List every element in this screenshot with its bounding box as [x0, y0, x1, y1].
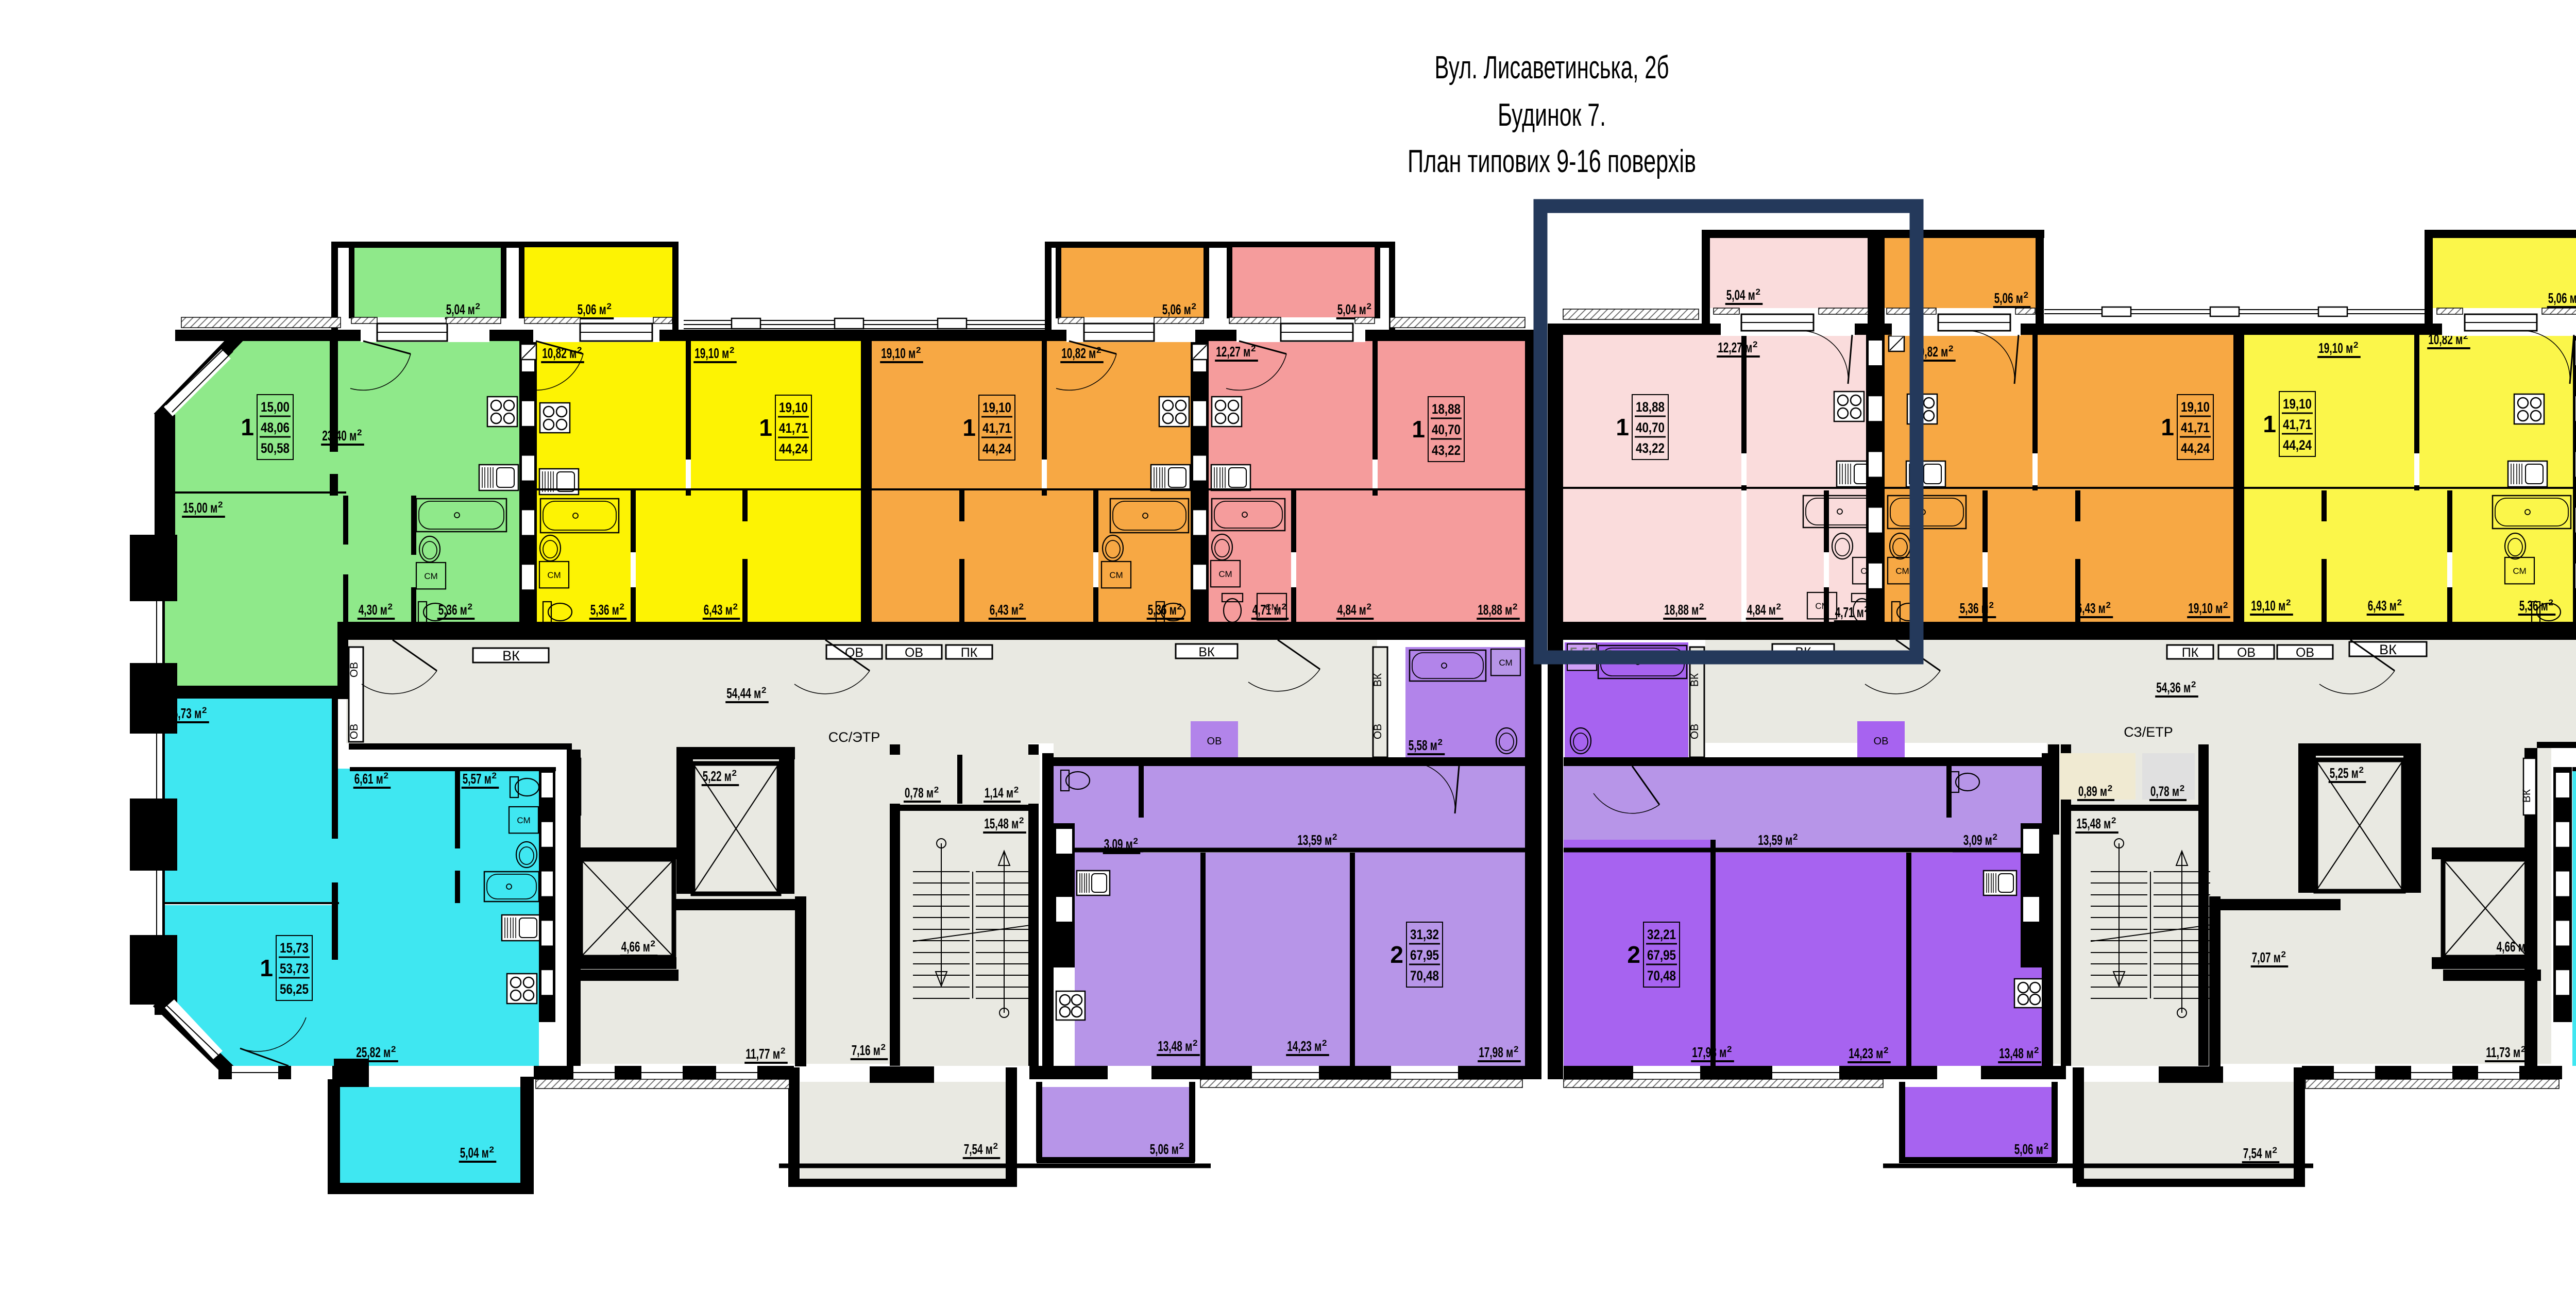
svg-text:5,25 м: 5,25 м — [2330, 765, 2359, 781]
svg-text:2: 2 — [2180, 784, 2184, 793]
svg-text:2: 2 — [2034, 1045, 2039, 1055]
svg-text:ВК: ВК — [1372, 673, 1384, 687]
svg-text:2: 2 — [761, 685, 766, 695]
svg-text:70,48: 70,48 — [1647, 968, 1676, 983]
svg-text:СМ: СМ — [517, 816, 530, 825]
svg-text:5,06 м: 5,06 м — [1994, 290, 2023, 306]
svg-text:ОВ: ОВ — [1207, 736, 1222, 747]
svg-text:13,48 м: 13,48 м — [1999, 1045, 2033, 1061]
svg-text:0,78 м: 0,78 м — [2150, 784, 2179, 799]
svg-text:56,25: 56,25 — [280, 981, 309, 997]
svg-text:7,16 м: 7,16 м — [852, 1042, 880, 1058]
svg-text:3,09 м: 3,09 м — [1104, 836, 1133, 852]
svg-text:2: 2 — [1793, 832, 1798, 842]
svg-text:44,24: 44,24 — [982, 441, 1011, 456]
svg-text:1: 1 — [2263, 411, 2276, 437]
svg-text:2: 2 — [1019, 602, 1024, 611]
svg-text:5,36 м: 5,36 м — [1960, 600, 1989, 616]
svg-text:2: 2 — [1177, 602, 1182, 611]
svg-text:2: 2 — [1948, 344, 1953, 353]
svg-text:17,98 м: 17,98 м — [1479, 1044, 1513, 1060]
svg-text:19,10 м: 19,10 м — [2251, 598, 2285, 614]
svg-text:54,44 м: 54,44 м — [726, 685, 761, 701]
svg-text:1: 1 — [962, 414, 976, 441]
svg-text:2: 2 — [1322, 1038, 1327, 1048]
svg-text:31,32: 31,32 — [1410, 927, 1439, 942]
svg-text:2: 2 — [2397, 598, 2402, 607]
svg-text:1: 1 — [1616, 414, 1629, 440]
svg-text:2: 2 — [2353, 340, 2358, 350]
svg-text:ОВ: ОВ — [845, 645, 863, 660]
svg-text:5,04 м: 5,04 м — [1726, 287, 1755, 303]
svg-text:19,10 м: 19,10 м — [2188, 600, 2223, 616]
svg-text:5,22 м: 5,22 м — [703, 768, 732, 784]
svg-text:2: 2 — [1438, 737, 1443, 747]
svg-text:5,06 м: 5,06 м — [2548, 290, 2576, 306]
svg-text:ОВ: ОВ — [2296, 645, 2314, 660]
svg-text:2: 2 — [730, 345, 734, 355]
svg-text:СМ: СМ — [1218, 569, 1232, 579]
svg-text:7,54 м: 7,54 м — [964, 1141, 993, 1157]
svg-text:43,22: 43,22 — [1636, 440, 1665, 456]
svg-text:6,43 м: 6,43 м — [2077, 600, 2106, 616]
svg-text:Вул. Лисаветинська, 2б: Вул. Лисаветинська, 2б — [1435, 50, 1669, 86]
svg-text:32,21: 32,21 — [1647, 927, 1676, 942]
svg-text:5,36 м: 5,36 м — [1148, 602, 1177, 618]
svg-text:13,48 м: 13,48 м — [1158, 1038, 1192, 1054]
svg-text:СМ: СМ — [2513, 566, 2526, 576]
svg-text:2: 2 — [1390, 941, 1403, 968]
svg-text:19,10 м: 19,10 м — [694, 345, 729, 361]
svg-text:40,70: 40,70 — [1432, 422, 1461, 437]
svg-text:50,58: 50,58 — [261, 440, 290, 456]
svg-text:23,40 м: 23,40 м — [322, 428, 357, 444]
svg-text:13,59 м: 13,59 м — [1297, 832, 1332, 848]
svg-text:4,84 м: 4,84 м — [1747, 602, 1776, 618]
svg-text:СМ: СМ — [1499, 658, 1512, 668]
svg-text:4,66 м: 4,66 м — [621, 939, 650, 955]
svg-text:2: 2 — [651, 939, 655, 948]
svg-text:1,14 м: 1,14 м — [985, 785, 1013, 801]
svg-text:54,36 м: 54,36 м — [2156, 680, 2191, 695]
svg-text:2: 2 — [732, 768, 737, 778]
svg-text:2: 2 — [2106, 600, 2111, 610]
svg-text:2: 2 — [2111, 816, 2116, 825]
svg-text:19,10: 19,10 — [2283, 396, 2312, 412]
svg-text:2: 2 — [1776, 602, 1781, 611]
svg-text:2: 2 — [2044, 1141, 2048, 1151]
svg-text:41,71: 41,71 — [779, 420, 808, 436]
svg-text:0,89 м: 0,89 м — [2078, 784, 2107, 799]
svg-text:2: 2 — [1282, 602, 1286, 611]
svg-text:2: 2 — [1332, 832, 1337, 842]
svg-text:5,36 м: 5,36 м — [2519, 598, 2548, 614]
svg-text:48,06: 48,06 — [261, 420, 290, 435]
svg-text:2: 2 — [916, 345, 921, 355]
svg-text:41,71: 41,71 — [2181, 420, 2210, 435]
svg-text:41,71: 41,71 — [982, 420, 1011, 436]
svg-text:2: 2 — [391, 1044, 396, 1054]
svg-text:2: 2 — [1192, 301, 1196, 311]
svg-text:6,43 м: 6,43 м — [704, 602, 733, 618]
svg-text:13,59 м: 13,59 м — [1758, 832, 1792, 848]
svg-text:14,23 м: 14,23 м — [1287, 1038, 1321, 1054]
svg-text:5,04 м: 5,04 м — [1337, 301, 1366, 317]
svg-text:11,77 м: 11,77 м — [745, 1046, 780, 1062]
svg-text:2: 2 — [202, 705, 207, 715]
svg-text:ВК: ВК — [2521, 789, 2533, 803]
svg-text:2: 2 — [993, 1141, 998, 1151]
svg-text:2: 2 — [384, 771, 388, 780]
svg-text:ОВ: ОВ — [1372, 724, 1384, 739]
svg-text:1: 1 — [260, 955, 273, 981]
svg-text:2: 2 — [1014, 785, 1019, 795]
svg-text:ОВ: ОВ — [1874, 736, 1889, 747]
svg-text:18,88 м: 18,88 м — [1478, 602, 1512, 618]
svg-text:67,95: 67,95 — [1410, 947, 1439, 963]
svg-text:17,98 м: 17,98 м — [1692, 1044, 1726, 1060]
svg-text:2: 2 — [1019, 816, 1024, 825]
svg-text:1: 1 — [1412, 416, 1425, 443]
svg-text:2: 2 — [2286, 598, 2291, 607]
svg-text:ОВ: ОВ — [348, 662, 360, 677]
svg-text:19,10 м: 19,10 м — [2318, 340, 2353, 356]
svg-text:2: 2 — [2223, 600, 2228, 610]
svg-text:4,30 м: 4,30 м — [359, 602, 387, 618]
svg-text:5,04 м: 5,04 м — [460, 1145, 489, 1161]
svg-text:2: 2 — [733, 602, 738, 611]
svg-text:2: 2 — [218, 500, 223, 509]
svg-text:70,48: 70,48 — [1410, 968, 1439, 983]
svg-text:2: 2 — [492, 771, 497, 780]
svg-text:СМ: СМ — [1109, 570, 1123, 580]
svg-text:СМ: СМ — [1895, 566, 1909, 576]
svg-text:25,82 м: 25,82 м — [356, 1044, 391, 1060]
svg-text:2: 2 — [2359, 765, 2364, 775]
svg-text:ВК: ВК — [1689, 673, 1701, 687]
svg-text:67,95: 67,95 — [1647, 947, 1676, 963]
svg-text:4,71 м: 4,71 м — [1252, 602, 1281, 618]
svg-text:11,73 м: 11,73 м — [2486, 1044, 2520, 1060]
svg-text:5,04 м: 5,04 м — [446, 301, 475, 317]
svg-text:5,57 м: 5,57 м — [463, 771, 492, 787]
svg-text:1: 1 — [2161, 414, 2174, 440]
svg-text:СС/ЭТР: СС/ЭТР — [828, 729, 880, 745]
svg-text:2: 2 — [620, 602, 624, 611]
svg-text:2: 2 — [357, 428, 362, 437]
svg-text:5,36 м: 5,36 м — [438, 602, 467, 618]
svg-text:План типових 9-16 поверхів: План типових 9-16 поверхів — [1408, 144, 1696, 179]
svg-text:2: 2 — [1993, 832, 1997, 842]
svg-text:СМ: СМ — [547, 570, 561, 580]
svg-text:2: 2 — [1756, 287, 1760, 297]
svg-text:1: 1 — [759, 414, 772, 441]
svg-text:СМ: СМ — [424, 571, 437, 581]
svg-text:19,10: 19,10 — [2181, 399, 2210, 415]
svg-text:2: 2 — [1179, 1141, 1184, 1151]
svg-text:15,73: 15,73 — [280, 940, 309, 956]
svg-text:2: 2 — [1514, 1044, 1518, 1054]
svg-text:15,48 м: 15,48 м — [984, 816, 1019, 831]
svg-text:2: 2 — [2108, 784, 2112, 793]
svg-text:2: 2 — [388, 602, 393, 611]
svg-text:2: 2 — [2273, 1145, 2277, 1155]
svg-text:ОВ: ОВ — [905, 645, 923, 660]
svg-text:2: 2 — [2191, 680, 2196, 689]
svg-text:4,66 м: 4,66 м — [2497, 939, 2526, 955]
svg-text:44,24: 44,24 — [2283, 437, 2312, 453]
svg-text:2: 2 — [1133, 836, 1138, 846]
svg-text:12,27 м: 12,27 м — [1216, 344, 1250, 360]
svg-text:2: 2 — [476, 301, 480, 311]
svg-text:ОВ: ОВ — [1689, 724, 1701, 739]
svg-text:2: 2 — [1753, 339, 1757, 349]
svg-text:2: 2 — [2549, 598, 2553, 607]
svg-text:18,88 м: 18,88 м — [1664, 602, 1699, 618]
svg-text:14,23 м: 14,23 м — [1849, 1045, 1883, 1061]
svg-text:53,73: 53,73 — [280, 961, 309, 976]
svg-text:2: 2 — [881, 1042, 886, 1052]
svg-text:18,88: 18,88 — [1432, 401, 1461, 417]
svg-text:15,00 м: 15,00 м — [183, 500, 217, 516]
svg-text:2: 2 — [1989, 600, 1994, 610]
svg-text:2: 2 — [1513, 602, 1517, 611]
svg-text:18,88: 18,88 — [1636, 399, 1665, 415]
svg-text:6,43 м: 6,43 м — [2368, 598, 2397, 614]
svg-text:5,06 м: 5,06 м — [1150, 1141, 1179, 1157]
svg-text:15,00: 15,00 — [261, 399, 290, 415]
svg-text:2: 2 — [781, 1046, 785, 1056]
svg-text:1: 1 — [241, 414, 254, 440]
svg-text:19,10 м: 19,10 м — [881, 345, 916, 361]
svg-text:ОВ: ОВ — [348, 724, 360, 739]
svg-text:4,71 м: 4,71 м — [1835, 604, 1864, 620]
svg-text:3,09 м: 3,09 м — [1963, 832, 1992, 848]
svg-text:7,54 м: 7,54 м — [2243, 1145, 2272, 1161]
svg-text:6,61 м: 6,61 м — [354, 771, 383, 787]
svg-text:2: 2 — [1699, 602, 1704, 611]
svg-text:ОВ: ОВ — [2237, 645, 2256, 660]
svg-text:44,24: 44,24 — [779, 441, 808, 456]
svg-text:Будинок 7.: Будинок 7. — [1498, 97, 1606, 133]
svg-text:5,06 м: 5,06 м — [1162, 301, 1191, 317]
svg-text:19,10: 19,10 — [779, 400, 808, 415]
svg-text:ВК: ВК — [502, 648, 520, 664]
svg-text:2: 2 — [1627, 941, 1640, 968]
svg-text:5,58 м: 5,58 м — [1409, 737, 1437, 753]
svg-text:7,07 м: 7,07 м — [2252, 949, 2281, 965]
svg-text:ПК: ПК — [2182, 645, 2199, 660]
svg-text:2: 2 — [607, 301, 612, 311]
svg-text:2: 2 — [1884, 1045, 1888, 1055]
svg-text:43,22: 43,22 — [1432, 443, 1461, 458]
svg-text:2: 2 — [1367, 602, 1371, 611]
svg-text:ВК: ВК — [1198, 645, 1215, 659]
svg-text:4,84 м: 4,84 м — [1337, 602, 1366, 618]
svg-text:2: 2 — [2024, 290, 2028, 300]
svg-text:ПК: ПК — [961, 645, 978, 660]
svg-text:2: 2 — [934, 785, 939, 795]
svg-text:19,10: 19,10 — [982, 400, 1011, 415]
svg-text:40,70: 40,70 — [1636, 420, 1665, 435]
svg-text:2: 2 — [1727, 1044, 1732, 1054]
svg-text:41,71: 41,71 — [2283, 417, 2312, 432]
svg-text:2: 2 — [489, 1145, 494, 1154]
svg-text:6,43 м: 6,43 м — [990, 602, 1019, 618]
svg-text:44,24: 44,24 — [2181, 440, 2210, 456]
svg-text:12,27 м: 12,27 м — [1718, 339, 1752, 355]
svg-text:2: 2 — [1367, 301, 1371, 311]
svg-text:5,06 м: 5,06 м — [2014, 1141, 2043, 1157]
svg-text:5,06 м: 5,06 м — [578, 301, 606, 317]
svg-text:ВК: ВК — [2379, 642, 2397, 657]
svg-text:0,78 м: 0,78 м — [905, 785, 934, 801]
svg-text:2: 2 — [1193, 1038, 1197, 1048]
svg-text:СЗ/ЕТР: СЗ/ЕТР — [2124, 724, 2173, 740]
svg-text:2: 2 — [468, 602, 472, 611]
svg-text:15,48 м: 15,48 м — [2076, 816, 2111, 831]
svg-text:5,36 м: 5,36 м — [590, 602, 619, 618]
svg-text:2: 2 — [2281, 949, 2286, 959]
